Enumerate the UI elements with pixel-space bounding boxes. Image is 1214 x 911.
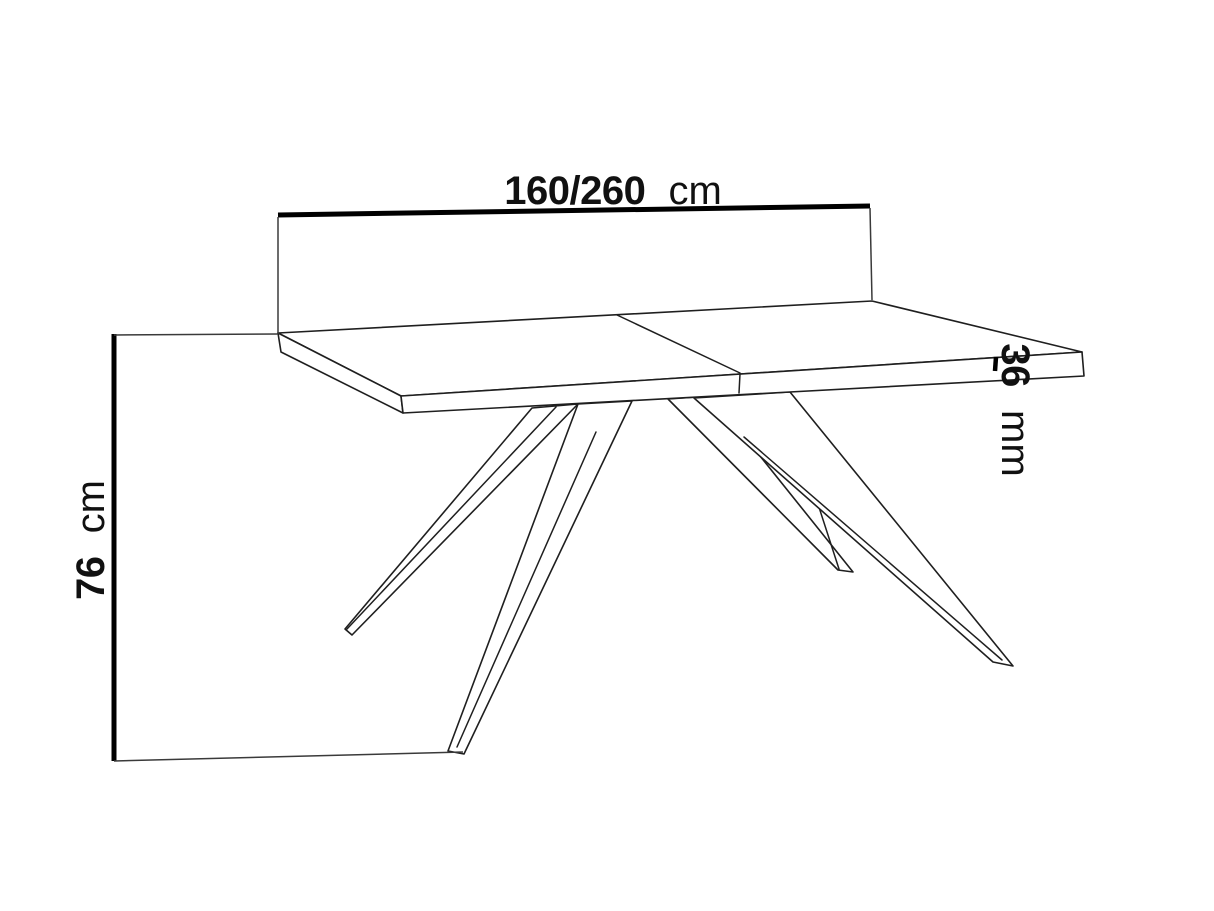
thickness-dimension-label: 36 mm: [993, 343, 1037, 476]
table-legs: [345, 392, 1013, 754]
thickness-value: 36: [993, 343, 1037, 387]
width-extension-right: [870, 208, 872, 300]
width-value: 160/260: [504, 169, 645, 213]
leg-front-right-ridge: [744, 437, 1002, 660]
height-extension-top: [114, 334, 278, 335]
leg-front-left: [448, 401, 632, 754]
width-dimension-label: 160/260 cm: [504, 169, 722, 213]
height-unit: cm: [69, 480, 113, 533]
height-extension-bottom: [114, 752, 463, 761]
thickness-unit: mm: [993, 410, 1037, 477]
height-value: 76: [69, 556, 113, 600]
width-unit: cm: [668, 169, 721, 213]
table-technical-drawing: 160/260 cm 76 cm 36 mm: [0, 0, 1214, 911]
table-top: [278, 301, 1084, 413]
height-dimension-label: 76 cm: [69, 480, 113, 600]
table-split-line-front: [739, 374, 740, 393]
leg-front-right: [694, 392, 1013, 666]
drawing-canvas: 160/260 cm 76 cm 36 mm: [0, 0, 1214, 911]
